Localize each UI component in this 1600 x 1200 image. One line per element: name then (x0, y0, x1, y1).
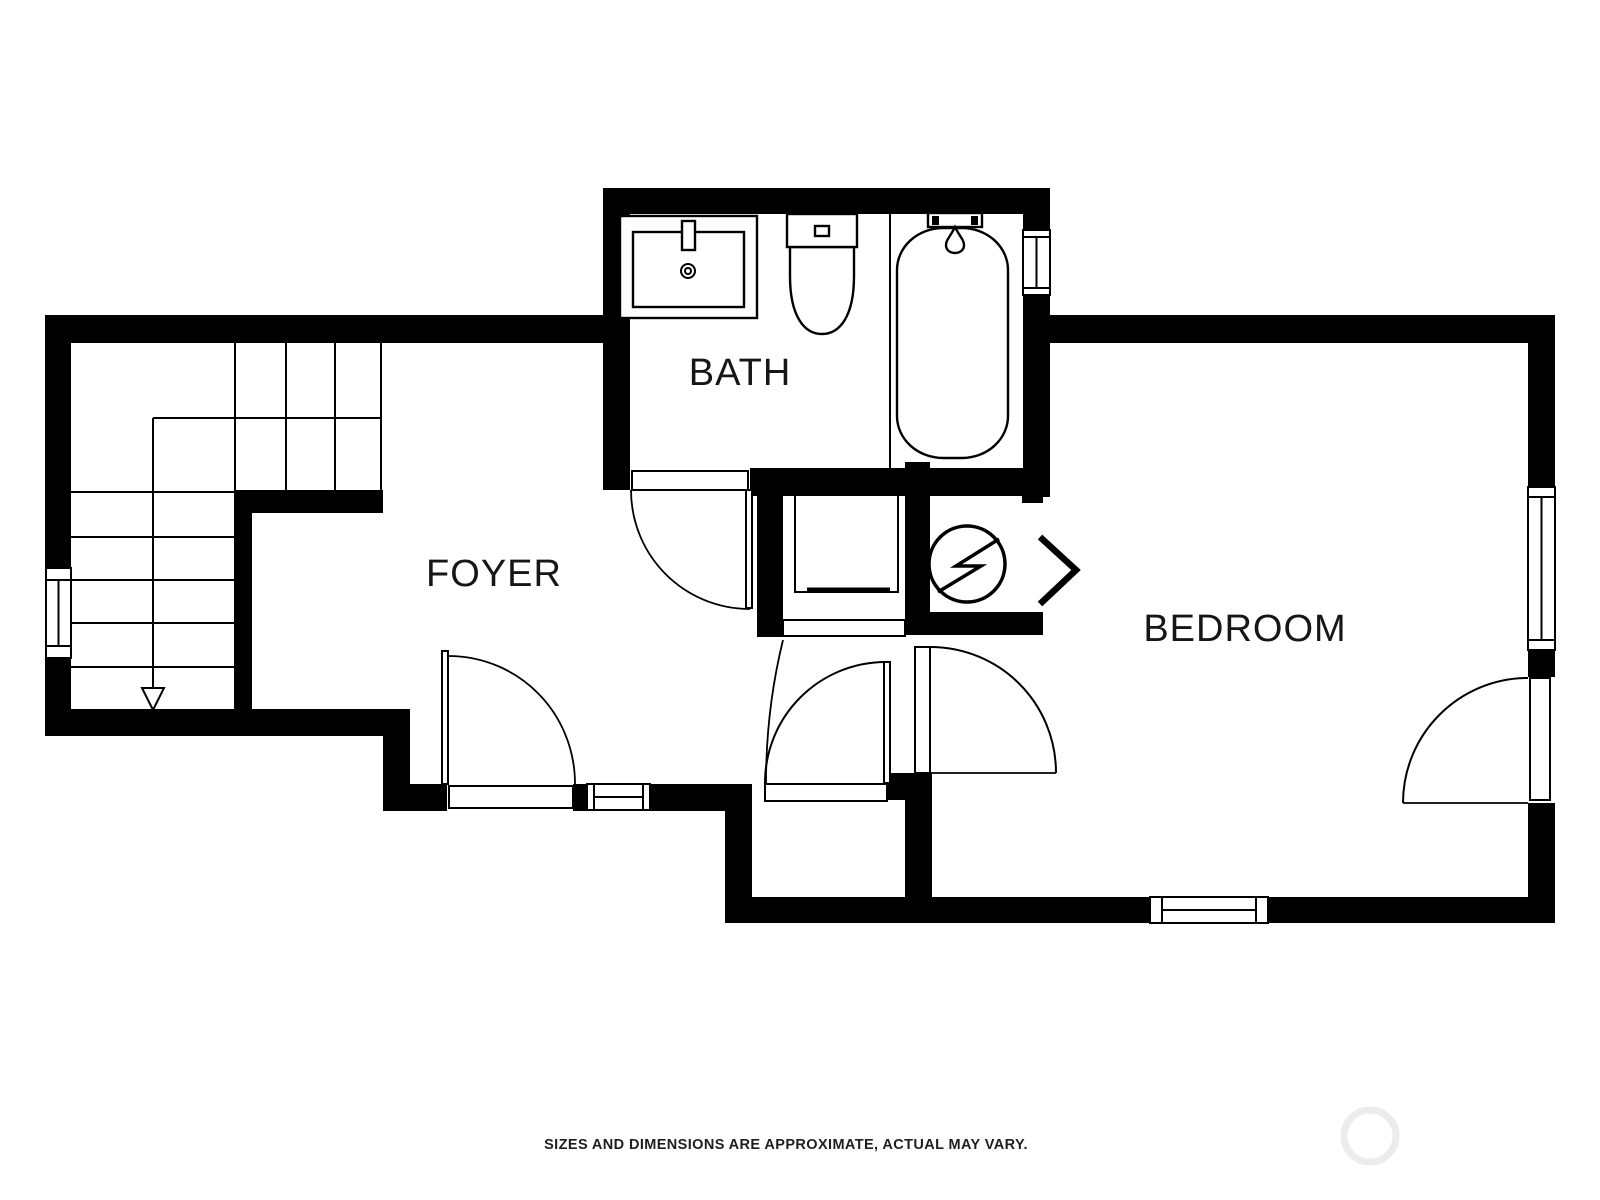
wall-bath-top (603, 188, 1050, 214)
wall-bath-right (1023, 295, 1050, 497)
wall-jog (383, 709, 410, 811)
wall-utility-bottom (905, 612, 1043, 635)
wall-entry-bottom (725, 897, 932, 923)
tub-handle-icon (932, 216, 939, 225)
wall-bottom-stairs (45, 709, 410, 736)
wall-top-right (1023, 315, 1555, 343)
floorplan-svg: BATH FOYER BEDROOM SIZES AND DIMENSIONS … (0, 0, 1600, 1200)
floorplan-image: BATH FOYER BEDROOM SIZES AND DIMENSIONS … (0, 0, 1600, 1200)
window-symbol (1023, 230, 1050, 295)
window-symbol (587, 784, 650, 810)
wall-bedroom-right (1528, 343, 1555, 487)
toilet-flush-button (815, 226, 829, 236)
wall-top-left (45, 315, 630, 343)
closet-slider-door (783, 620, 905, 636)
wall-bedroom-bottom (905, 897, 1150, 923)
caption-text: SIZES AND DIMENSIONS ARE APPROXIMATE, AC… (544, 1137, 1028, 1153)
wall-stair-foyer (234, 513, 252, 736)
sink-vanity-symbol (620, 216, 757, 318)
wall-stair-winder (234, 490, 383, 513)
sink-faucet-icon (682, 221, 695, 250)
foyer-label: FOYER (426, 553, 562, 595)
window-symbol (1528, 487, 1555, 650)
toilet-symbol (787, 214, 857, 334)
bedroom-label: BEDROOM (1143, 608, 1346, 650)
tub-handle-icon (971, 216, 978, 225)
wall-closet-left (757, 494, 783, 637)
wall-left (45, 315, 71, 736)
window-symbol (46, 568, 71, 658)
window-symbol (1150, 897, 1268, 923)
bath-label: BATH (689, 352, 792, 394)
bathtub-symbol (897, 213, 1008, 458)
